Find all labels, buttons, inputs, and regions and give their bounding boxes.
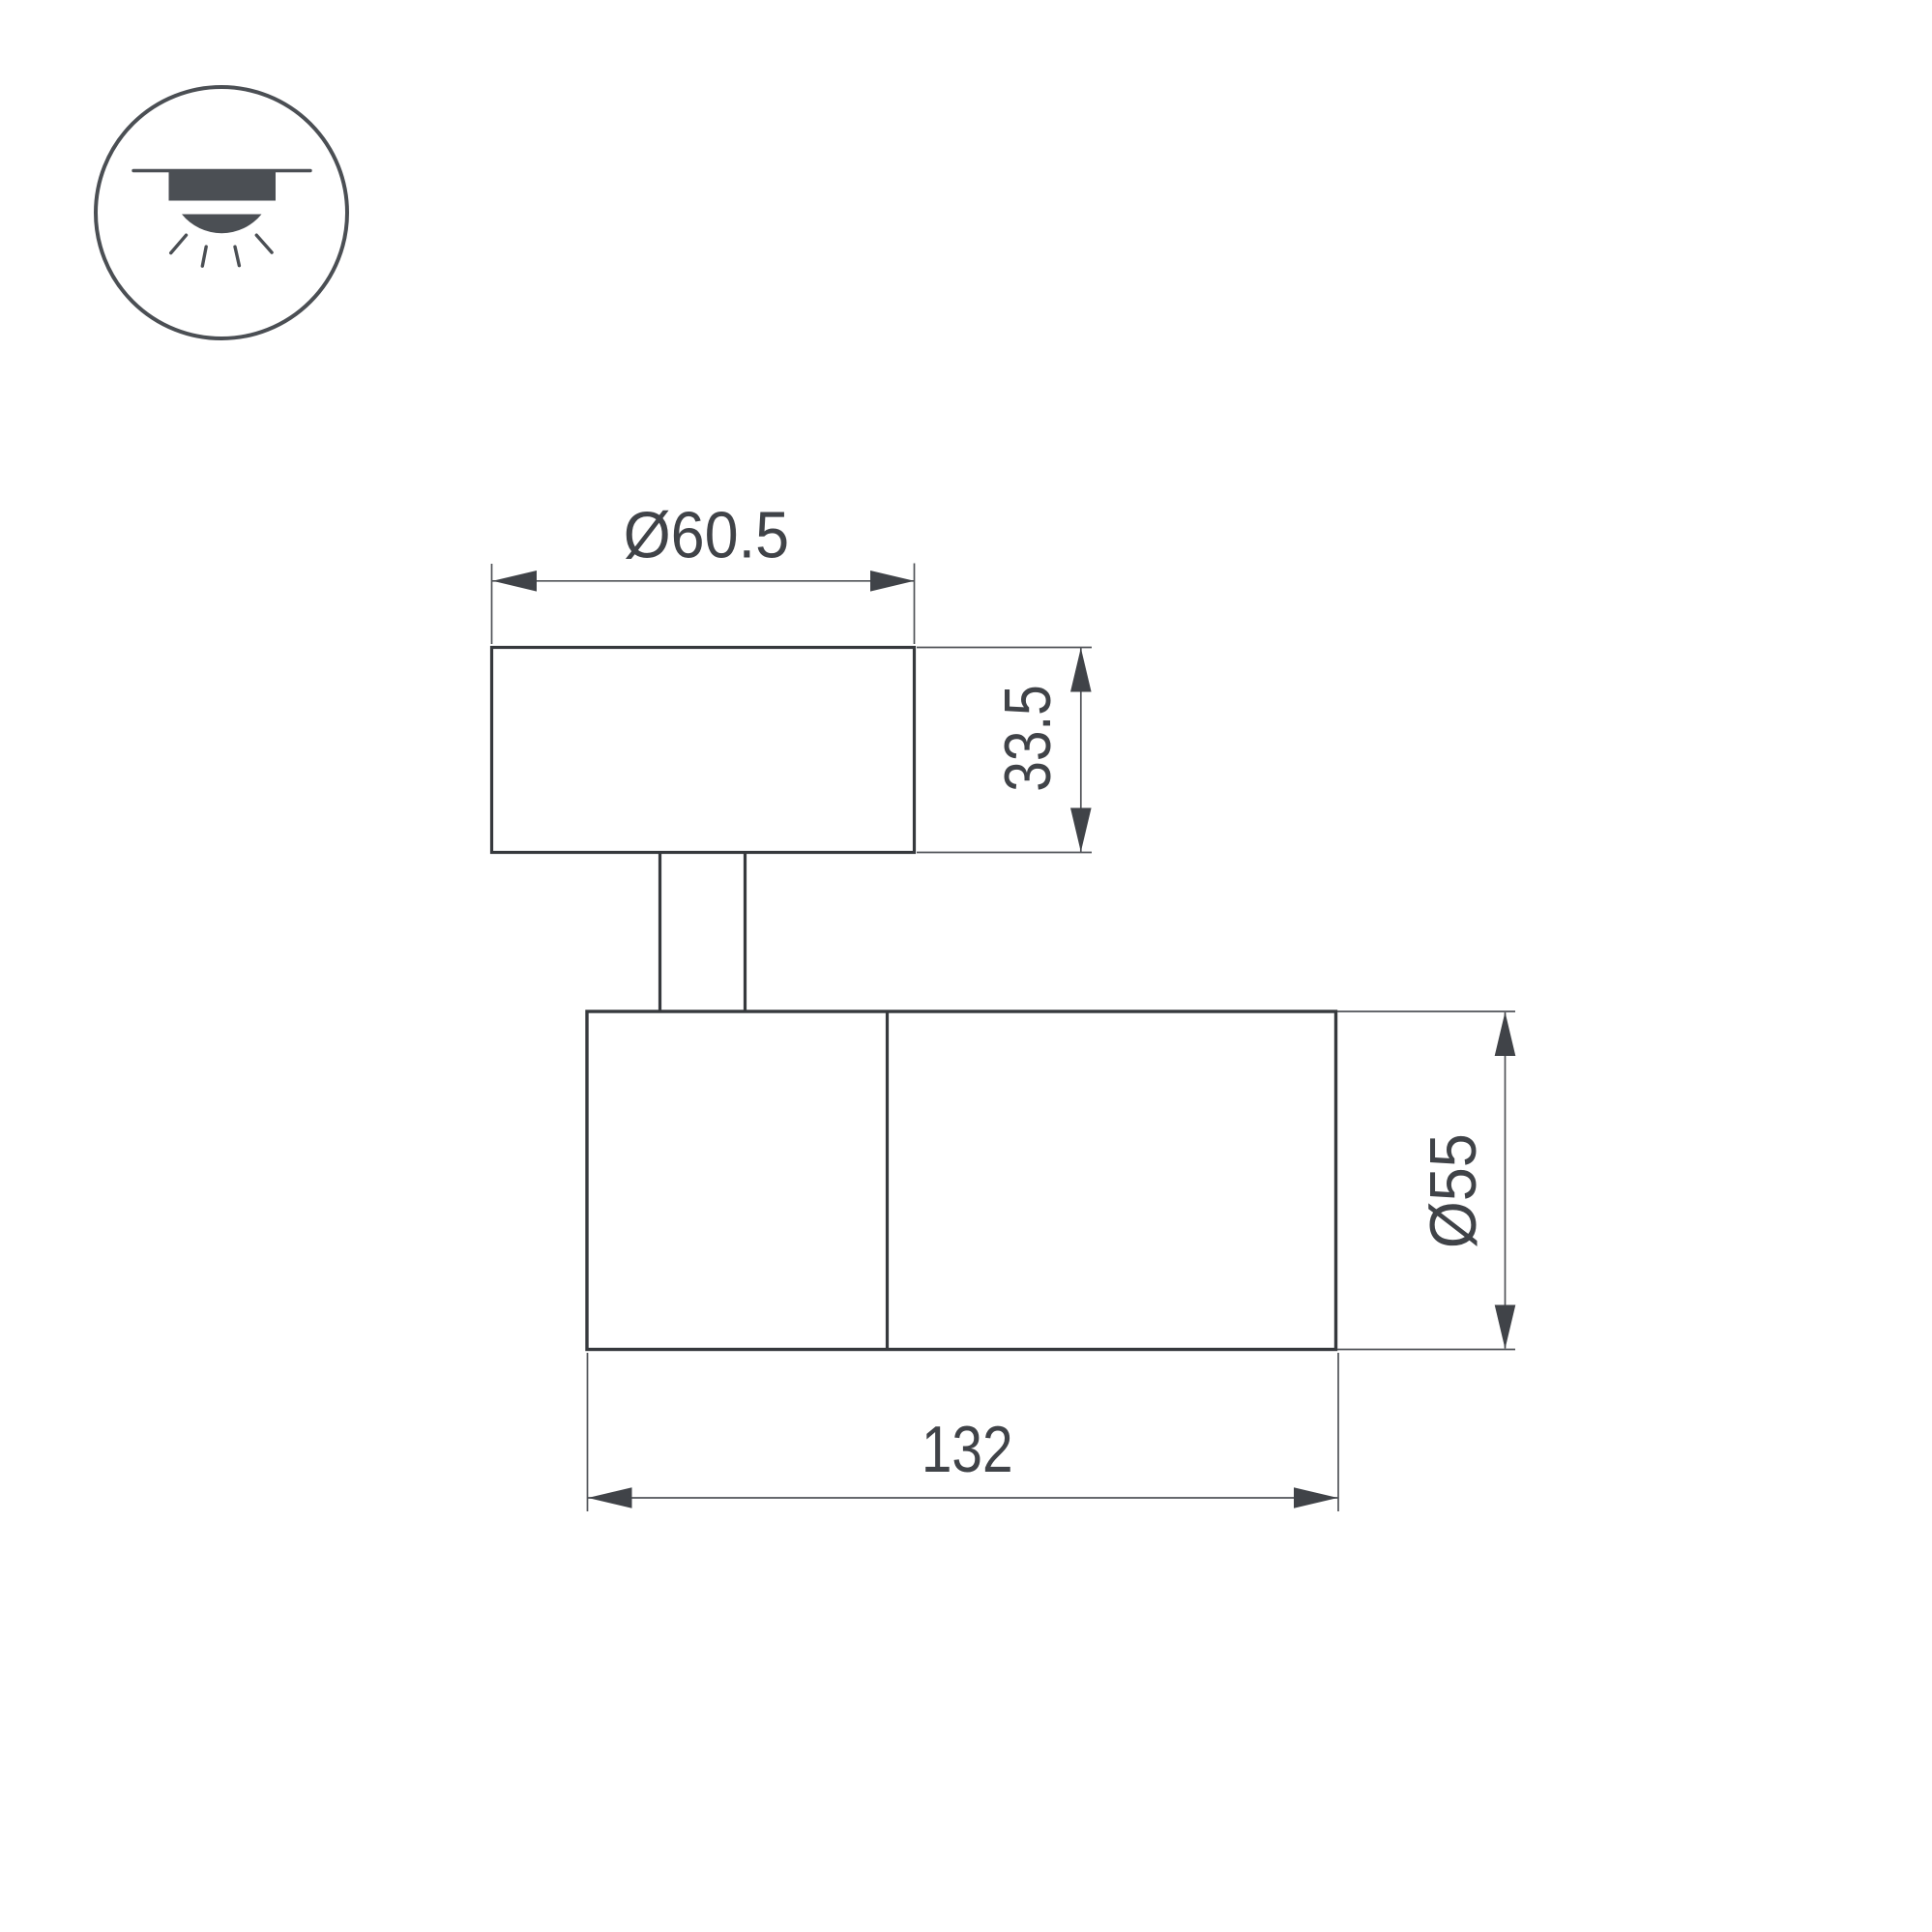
svg-text:Ø60.5: Ø60.5 (624, 498, 789, 571)
svg-text:33.5: 33.5 (991, 685, 1065, 791)
svg-text:132: 132 (922, 1413, 1013, 1486)
svg-text:Ø55: Ø55 (1417, 1133, 1490, 1248)
